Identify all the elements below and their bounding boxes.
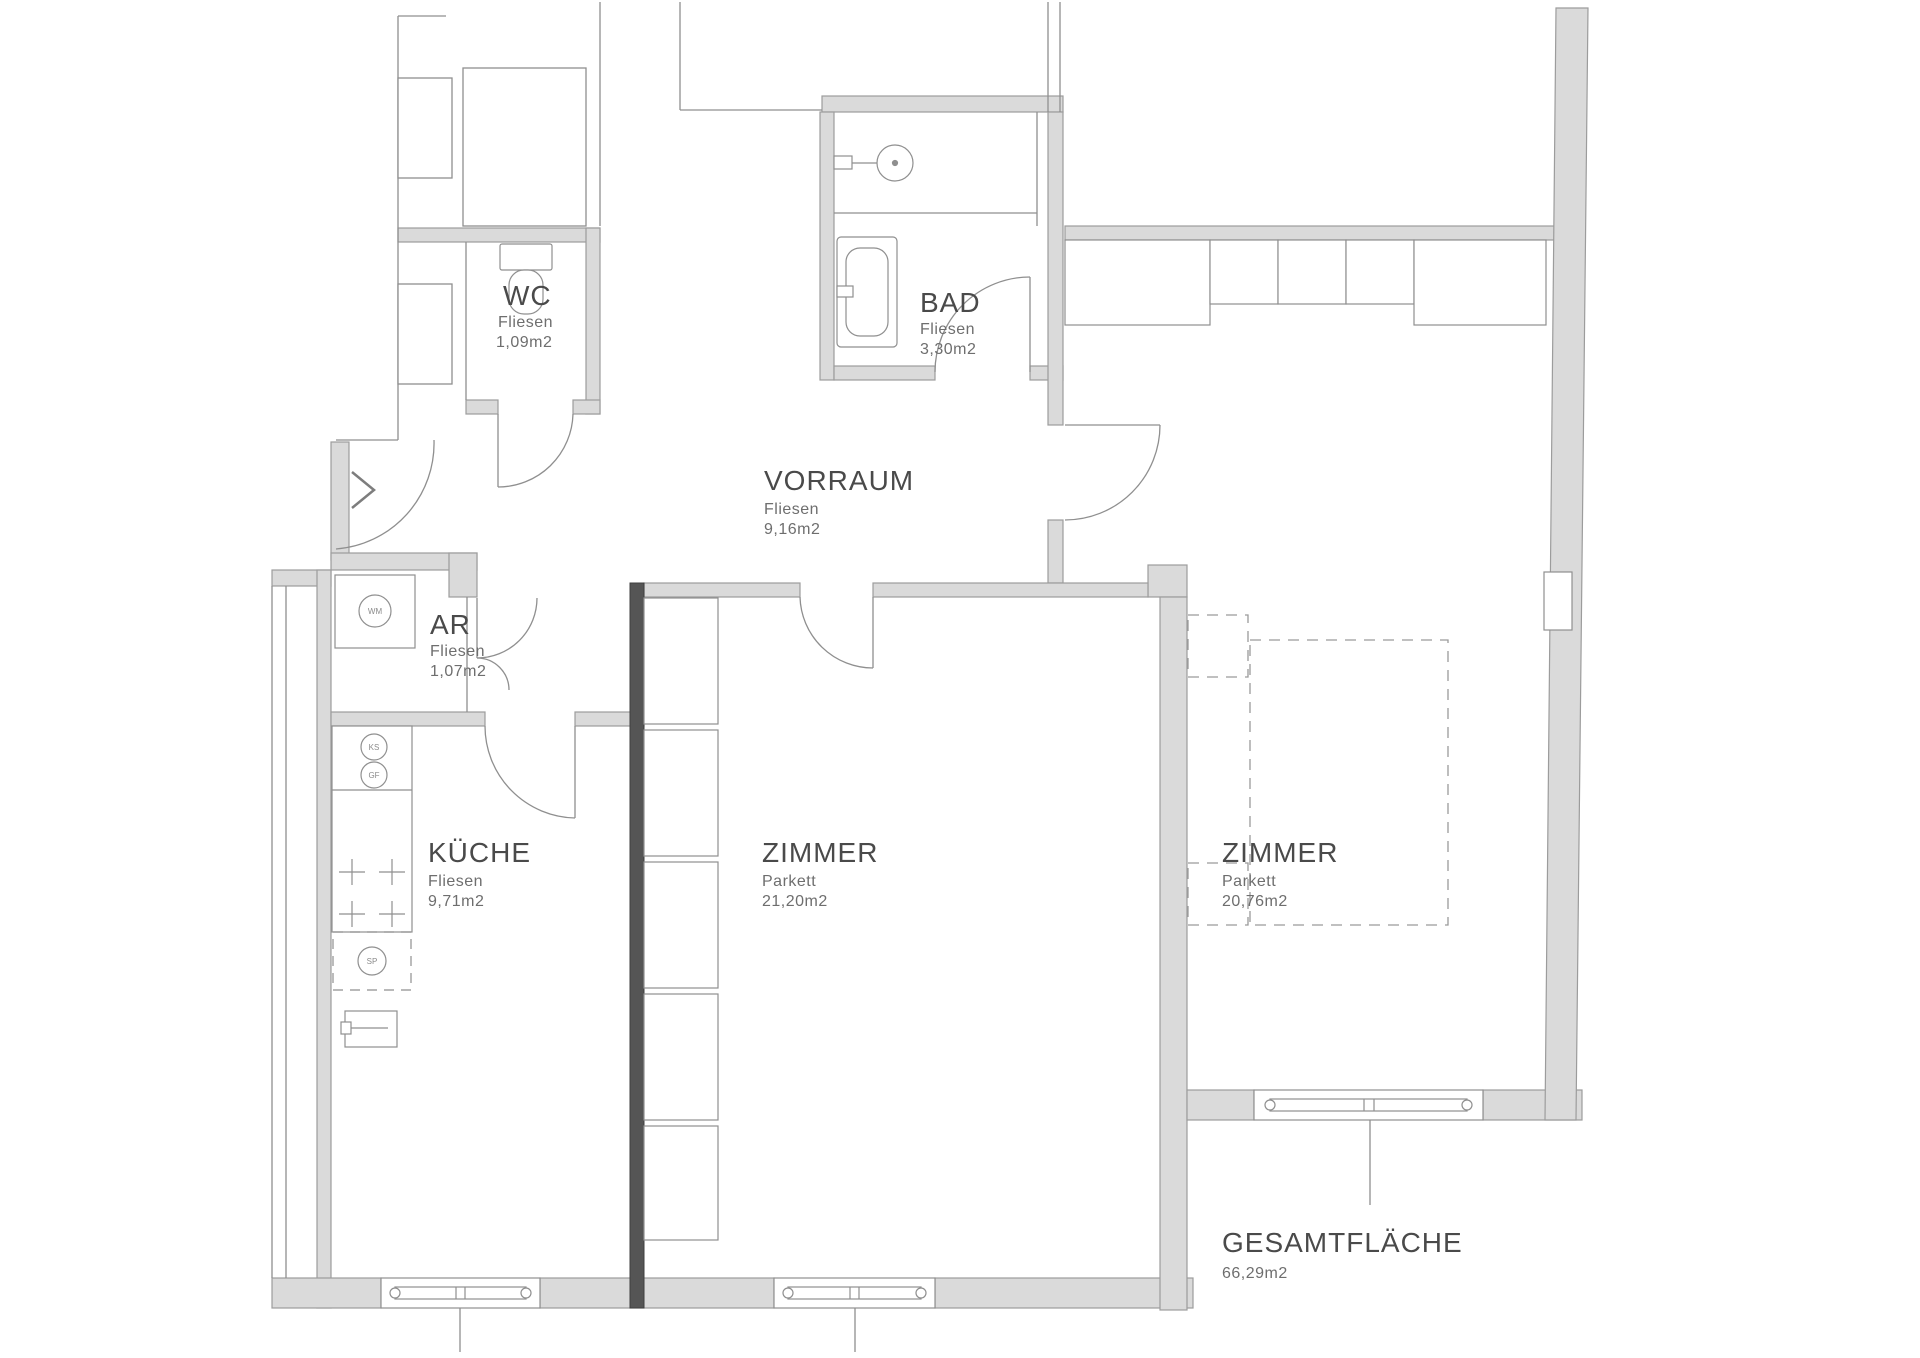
total-area-value: 66,29m2 — [1222, 1265, 1288, 1282]
kueche-door — [485, 726, 575, 818]
room-name: BAD — [920, 287, 981, 318]
windows — [381, 1090, 1483, 1308]
label-kueche: KÜCHE Fliesen 9,71m2 — [428, 837, 531, 910]
kitchen-fixtures: KS GF SP — [332, 726, 412, 1047]
room-labels: WC Fliesen 1,09m2 BAD Fliesen 3,30m2 VOR… — [428, 280, 1463, 1282]
label-wc: WC Fliesen 1,09m2 — [496, 280, 553, 351]
room-area: 1,09m2 — [496, 334, 552, 351]
shaft-room — [463, 68, 586, 226]
room-floor: Parkett — [1222, 873, 1276, 890]
exterior-right-wall — [1545, 8, 1588, 1120]
washbasin — [834, 145, 913, 181]
label-ar: AR Fliesen 1,07m2 — [430, 609, 486, 680]
window-zimmer-middle — [774, 1278, 935, 1308]
ar-washing-machine: WM — [335, 575, 415, 648]
label-vorraum: VORRAUM Fliesen 9,16m2 — [764, 465, 914, 538]
bad-fixtures — [834, 145, 913, 347]
entry-arrow-icon — [352, 472, 374, 508]
wall-niche — [1544, 572, 1572, 630]
room-name: AR — [430, 609, 471, 640]
wc-door — [498, 414, 573, 487]
room-name: VORRAUM — [764, 465, 914, 496]
label-zimmer-middle: ZIMMER Parkett 21,20m2 — [762, 837, 878, 910]
zimmer-middle-door — [800, 597, 873, 668]
room-name: KÜCHE — [428, 837, 531, 868]
bathtub — [837, 237, 897, 347]
window-kueche — [381, 1278, 540, 1308]
label-gesamtflaeche: GESAMTFLÄCHE 66,29m2 — [1222, 1227, 1463, 1282]
room-floor: Fliesen — [428, 873, 483, 890]
room-name: ZIMMER — [762, 837, 878, 868]
room-area: 9,71m2 — [428, 893, 484, 910]
room-floor: Fliesen — [498, 314, 553, 331]
dark-wall-kitchen-zimmer — [630, 583, 644, 1308]
room-area: 1,07m2 — [430, 663, 486, 680]
wardrobes-zimmer-right — [1065, 240, 1546, 325]
top-left-structures — [398, 68, 586, 384]
room-floor: Fliesen — [764, 501, 819, 518]
wardrobes-zimmer-middle — [644, 598, 718, 1240]
zimmer-right-door — [1065, 425, 1160, 520]
window-zimmer-right — [1254, 1090, 1483, 1120]
floor-plan: WM KS GF SP WC — [0, 0, 1920, 1358]
room-floor: Parkett — [762, 873, 816, 890]
floor-plan-drawing: WM KS GF SP WC — [0, 0, 1920, 1358]
room-area: 20,76m2 — [1222, 893, 1288, 910]
room-area: 21,20m2 — [762, 893, 828, 910]
label-bad: BAD Fliesen 3,30m2 — [920, 287, 981, 358]
room-area: 9,16m2 — [764, 521, 820, 538]
nightstand — [1188, 615, 1248, 677]
bed — [1250, 640, 1448, 925]
cabinet — [398, 284, 452, 384]
total-area-title: GESAMTFLÄCHE — [1222, 1227, 1463, 1258]
doors — [336, 277, 1160, 818]
room-floor: Fliesen — [920, 321, 975, 338]
label-zimmer-right: ZIMMER Parkett 20,76m2 — [1222, 837, 1338, 910]
room-area: 3,30m2 — [920, 341, 976, 358]
freezer-label: GF — [368, 771, 379, 780]
sink-label: SP — [367, 957, 378, 966]
entry-door — [336, 440, 434, 549]
kitchen-sink-unit — [341, 1011, 397, 1047]
room-name: ZIMMER — [1222, 837, 1338, 868]
room-floor: Fliesen — [430, 643, 485, 660]
room-name: WC — [503, 280, 552, 311]
fridge-label: KS — [369, 743, 380, 752]
cabinet — [398, 78, 452, 178]
washing-machine-label: WM — [368, 607, 383, 616]
